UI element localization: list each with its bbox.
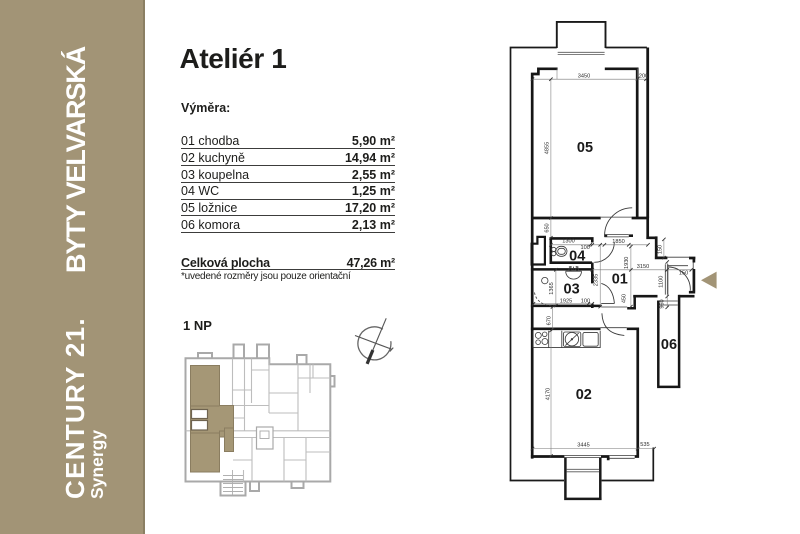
svg-text:100: 100 <box>581 298 590 304</box>
svg-text:2335: 2335 <box>593 274 599 286</box>
svg-text:670: 670 <box>546 316 552 325</box>
svg-text:650: 650 <box>545 223 551 232</box>
svg-text:150: 150 <box>679 270 688 276</box>
svg-text:02: 02 <box>576 387 592 403</box>
svg-text:05: 05 <box>577 140 593 156</box>
svg-text:150: 150 <box>658 245 664 254</box>
svg-text:4170: 4170 <box>545 388 551 400</box>
svg-text:03: 03 <box>564 281 580 297</box>
svg-text:3450: 3450 <box>578 73 590 79</box>
svg-text:1930: 1930 <box>624 257 630 269</box>
svg-text:450: 450 <box>622 294 628 303</box>
svg-text:960: 960 <box>659 299 665 308</box>
svg-text:1100: 1100 <box>659 276 665 288</box>
svg-text:1300: 1300 <box>562 239 574 245</box>
svg-text:3150: 3150 <box>637 264 649 270</box>
svg-text:1925: 1925 <box>560 298 572 304</box>
svg-text:3445: 3445 <box>577 442 589 448</box>
svg-text:535: 535 <box>640 442 649 448</box>
svg-text:200: 200 <box>639 73 648 79</box>
svg-text:04: 04 <box>569 248 585 264</box>
svg-text:06: 06 <box>661 337 677 353</box>
svg-text:1365: 1365 <box>549 282 555 294</box>
svg-text:01: 01 <box>612 272 628 288</box>
svg-text:4855: 4855 <box>544 142 550 154</box>
svg-text:1850: 1850 <box>612 239 624 245</box>
